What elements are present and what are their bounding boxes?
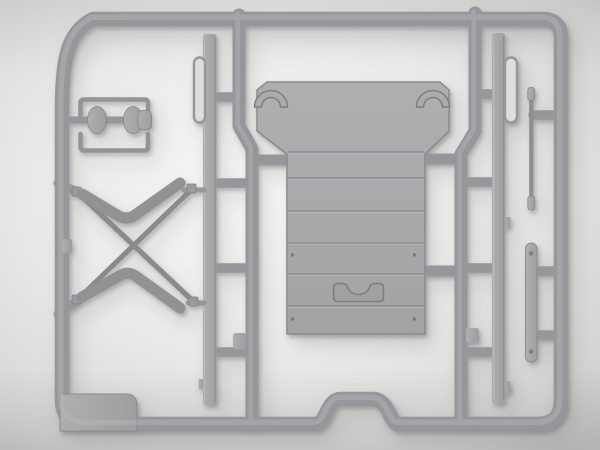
strap-body xyxy=(526,243,538,362)
corner-gate-tab xyxy=(60,394,137,431)
x-brace-pad xyxy=(189,297,198,306)
runner-right-nub xyxy=(466,328,479,343)
runner-left-nub xyxy=(233,333,246,349)
channel-strip-left xyxy=(194,58,205,123)
rod-end-fitting xyxy=(528,196,535,210)
riveted-strap xyxy=(526,243,538,362)
strap-rivet xyxy=(529,251,533,255)
strap-rivet xyxy=(529,349,533,353)
x-brace-pad xyxy=(187,184,196,193)
rivet xyxy=(291,253,294,256)
rivet xyxy=(291,317,294,320)
sprue-photo xyxy=(0,0,600,450)
rail-nub xyxy=(62,239,72,253)
rivet xyxy=(413,317,416,320)
rivet xyxy=(413,253,416,256)
channel-strip-right xyxy=(505,58,517,123)
axle-end-block xyxy=(138,111,152,130)
axle-joint-lobe xyxy=(88,107,107,134)
sprue-photo-canvas xyxy=(0,0,600,450)
rod-end-fitting xyxy=(528,88,535,101)
